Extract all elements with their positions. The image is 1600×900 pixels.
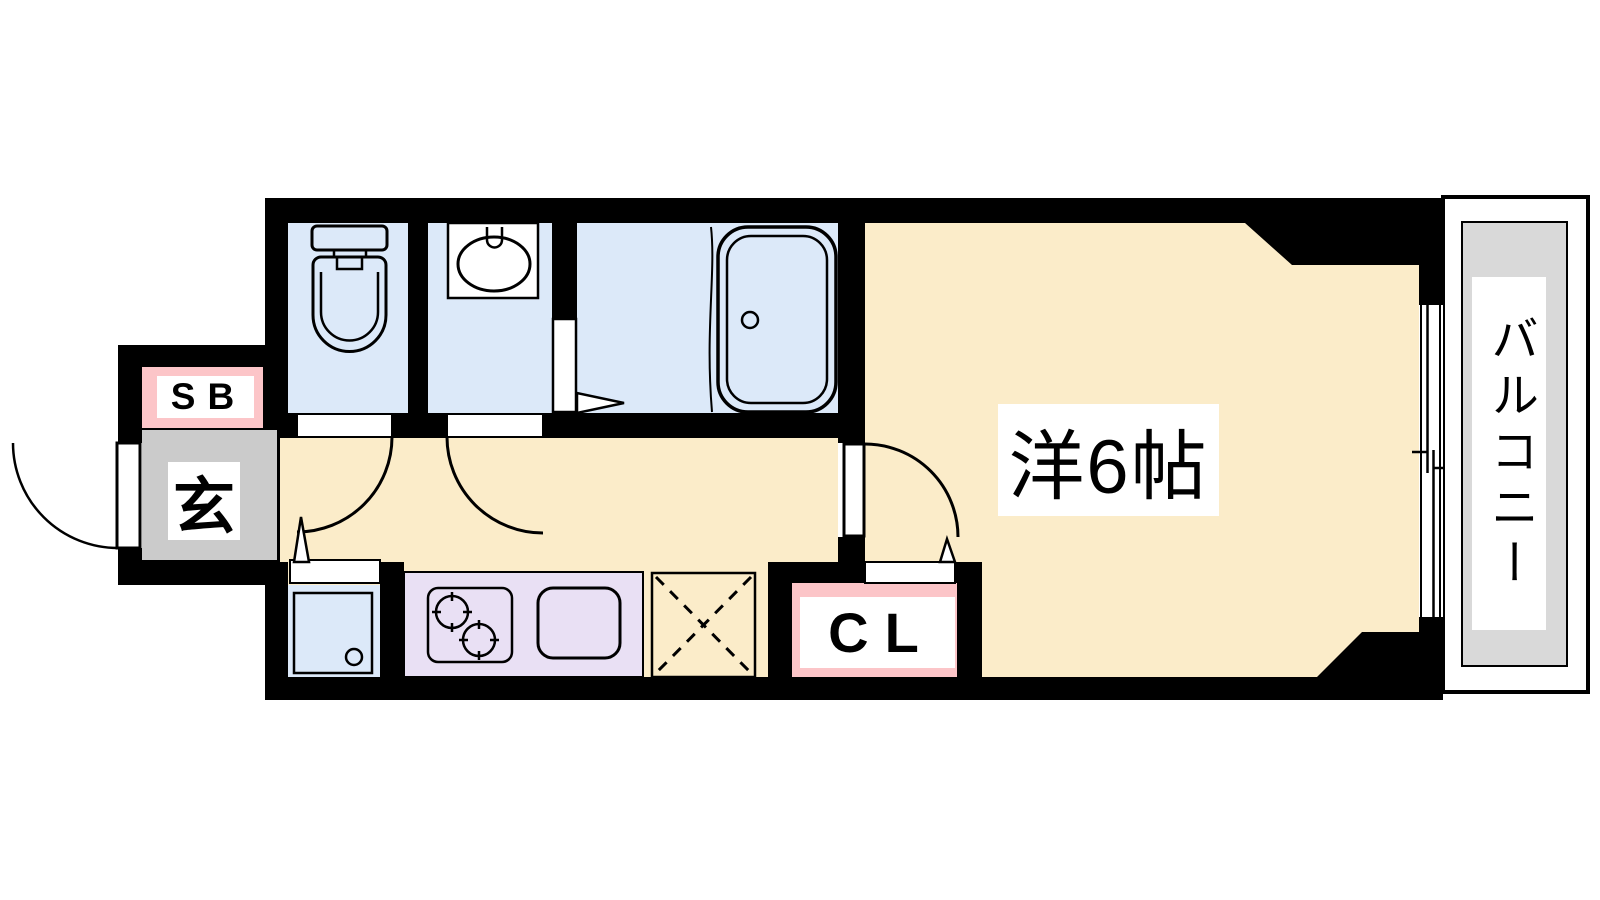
western-room-label: 洋6帖	[998, 404, 1219, 516]
floor-plan-drawing	[0, 0, 1600, 900]
wall-washer-kitchen	[380, 562, 404, 677]
genkan-step-opening	[280, 438, 288, 562]
washbasin-doorway	[447, 414, 543, 437]
entrance-door-arc	[13, 443, 118, 548]
closet-opening	[865, 562, 955, 583]
balcony-label: バルコニー	[1472, 277, 1546, 630]
bathroom-door-leaf	[553, 319, 576, 412]
closet-label: CL	[800, 597, 955, 668]
refrigerator-space	[652, 573, 755, 677]
entrance-door-leaf	[117, 443, 140, 548]
washbasin-icon	[448, 223, 538, 298]
toilet-doorway	[297, 414, 392, 437]
floor-plan: SB 玄 CL 洋6帖 バルコニー	[0, 0, 1600, 900]
entrance-door	[13, 443, 140, 548]
entrance-label: 玄	[168, 462, 240, 540]
shoe-box-label: SB	[157, 376, 254, 418]
room-door-leaf	[844, 444, 864, 536]
washer-space-opening	[290, 560, 380, 583]
bathroom-floor	[577, 223, 838, 413]
washing-machine-pan	[288, 585, 380, 677]
